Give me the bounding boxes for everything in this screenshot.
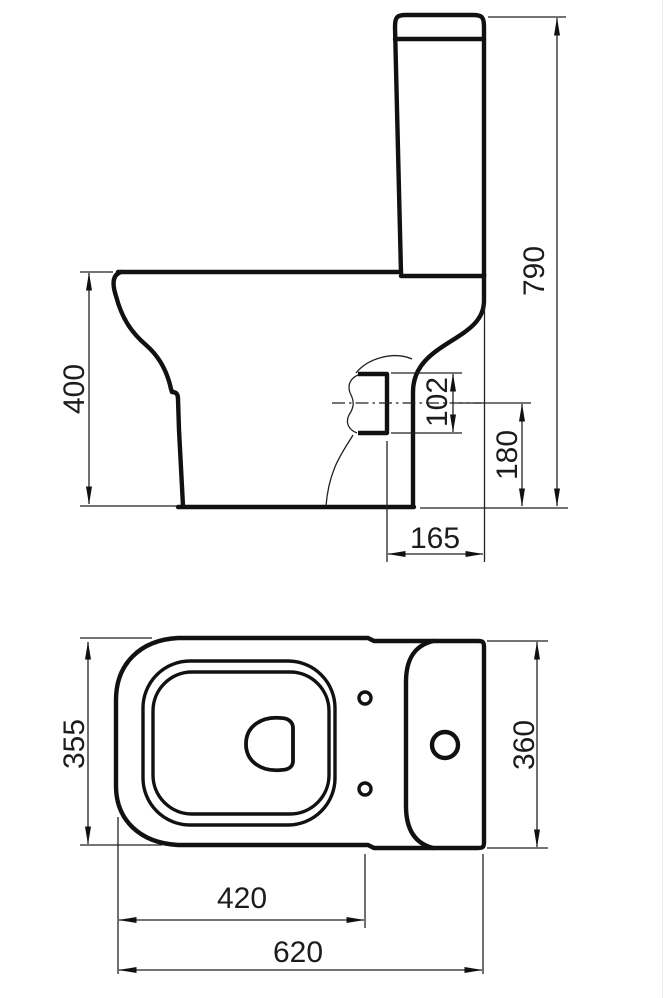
bowl-front-profile [114,272,183,506]
plan-view: 355 360 420 620 [58,638,548,974]
sump-outline [246,718,293,771]
fixing-hole-top [359,692,371,704]
dimension-355-label: 355 [58,719,91,769]
dimension-165-label: 165 [410,522,460,555]
fixing-hole-bottom [359,783,371,795]
technical-drawing: 400 790 102 180 165 [0,0,668,998]
dimension-102-label: 102 [421,377,454,427]
drawing-sheet: 400 790 102 180 165 [0,0,668,998]
trap-lower-curve [326,435,353,506]
trap-upper-curve [356,356,412,373]
flush-hole [432,732,458,758]
plan-outer-outline [116,638,484,848]
plan-cistern-front [406,641,433,848]
dimension-360-label: 360 [508,720,541,770]
side-elevation-view: 400 790 102 180 165 [58,15,568,562]
seat-ring-outer [143,661,335,825]
dimension-180-label: 180 [491,430,524,480]
dimension-420-label: 420 [217,882,267,915]
seat-ring-inner [153,672,329,814]
cistern-outline [395,15,484,276]
dimension-400-label: 400 [58,364,91,414]
spigot-break-line [347,375,358,433]
dimension-620-label: 620 [273,936,323,969]
dimension-790-label: 790 [518,246,551,296]
page-edge-line [662,0,663,998]
